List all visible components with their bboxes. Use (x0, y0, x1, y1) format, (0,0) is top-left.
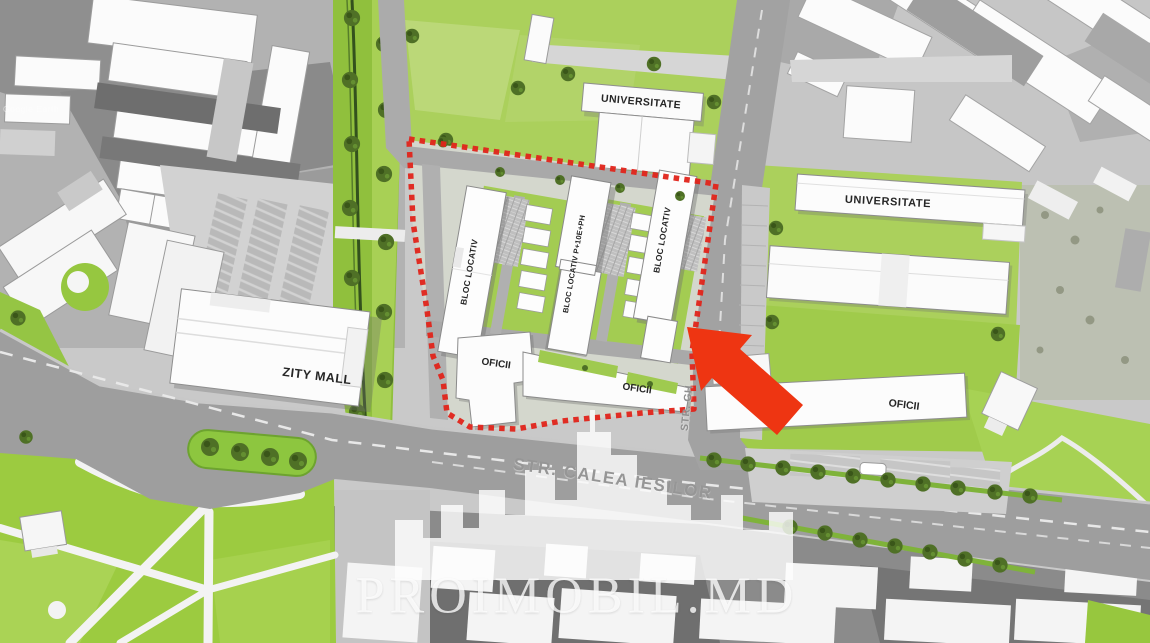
map-graphic (0, 0, 1150, 643)
brand-watermark: PROIMOBIL.MD (356, 567, 799, 626)
development-site (406, 137, 718, 430)
photo-area-east (1020, 167, 1150, 400)
car-icon (860, 462, 887, 475)
map-attribution: Google Earth (3, 104, 59, 114)
site-plan-map: UNIVERSITATE UNIVERSITATE ZITY MALL BLOC… (0, 0, 1150, 643)
highlight-arrow (680, 320, 810, 445)
